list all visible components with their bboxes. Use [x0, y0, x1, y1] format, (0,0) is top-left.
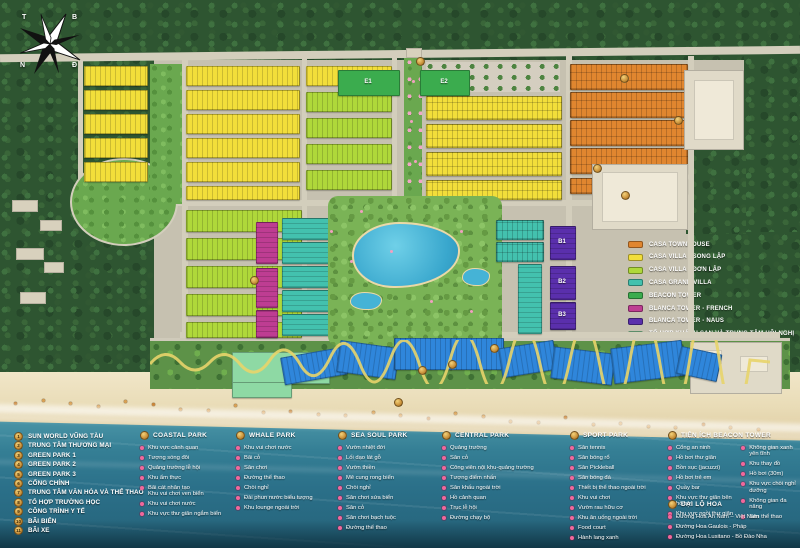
- casa-townhouse: [570, 120, 688, 146]
- pink-bullet: [236, 476, 240, 480]
- compass-north-label: B: [72, 14, 77, 21]
- casa-villa-song-lap: [426, 96, 562, 120]
- compass-west-label: T: [22, 14, 26, 21]
- park-section-items: Sân tennisSân bóng rổSân PickleballSân b…: [570, 445, 646, 545]
- park-item-label: Sân khấu ngoài trời: [450, 485, 501, 491]
- park-item: Tượng điểm nhấn: [442, 475, 534, 481]
- park-item-label: Tượng điểm nhấn: [450, 475, 496, 481]
- pink-bullet: [442, 516, 446, 520]
- park-item: Quảng trường lễ hội: [140, 465, 221, 471]
- park-item-label: Vườn rau hữu cơ: [578, 505, 623, 511]
- numbered-legend-item: 6CỔNG CHÍNH: [14, 479, 70, 488]
- casa-villa-song-lap: [84, 162, 148, 182]
- casa-villa-don-lap: [306, 118, 392, 138]
- pink-bullet: [442, 446, 446, 450]
- park-section-sea-soul-park: SEA SOUL PARKVườn nhiệt đớiLối dạo lát g…: [338, 431, 408, 535]
- casa-villa-song-lap: [426, 152, 562, 176]
- map-marker: [394, 398, 403, 407]
- park-badge: [570, 431, 579, 440]
- park-badge: [668, 431, 677, 440]
- casa-grand-villa: [518, 264, 542, 334]
- park-item-column: Khu vui chơi nướcBãi cỏSân chơiĐường thể…: [236, 445, 313, 515]
- number-badge: 10: [14, 517, 23, 526]
- park-item-label: Khu vui chơi nước: [148, 501, 196, 507]
- pink-bullet: [338, 466, 342, 470]
- pool: [462, 268, 490, 286]
- park-item-label: Khu vực chòi nghỉ dưỡng: [749, 481, 800, 494]
- legend-item-label: CASA GRAND VILLA: [649, 280, 712, 286]
- park-item: Sân bóng đá: [570, 475, 646, 481]
- park-section-items: Đường Hoa An Nam – Việt NamĐường Hoa Gau…: [668, 514, 767, 544]
- park-item-label: Tượng sóng đôi: [148, 455, 189, 461]
- number-badge: 5: [14, 470, 23, 479]
- pink-bullet: [338, 506, 342, 510]
- pink-bullet: [570, 476, 574, 480]
- pink-bullet: [442, 466, 446, 470]
- legend-swatch: [628, 318, 643, 325]
- park-item: Đài phun nước biểu tượng: [236, 495, 313, 501]
- park-section-header: SPORT PARK: [570, 431, 646, 440]
- park-badge: [442, 431, 451, 440]
- park-item-label: Hồ bơi trẻ em: [676, 475, 711, 481]
- park-item: Cổng an ninh: [668, 445, 733, 451]
- park-item-label: Đài phun nước biểu tượng: [244, 495, 313, 501]
- pink-bullet: [338, 446, 342, 450]
- park-item: Sân cỏ: [442, 455, 534, 461]
- numbered-legend-label: CÔNG TRÌNH Y TẾ: [28, 508, 85, 515]
- pink-bullet: [442, 496, 446, 500]
- numbered-legend-item: 10BÃI BIỂN: [14, 517, 56, 526]
- park-item: Chòi nghỉ: [236, 485, 313, 491]
- park-item: Đường thể thao: [338, 525, 396, 531]
- numbered-legend-label: GREEN PARK 1: [28, 452, 76, 459]
- park-item: Khu lounge ngoài trời: [236, 505, 313, 511]
- park-section-items: Quảng trườngSân cỏCông viên nội khu-quản…: [442, 445, 534, 525]
- park-item: Bãi cát nhân tạo Khu vui chơi ven biển: [140, 485, 221, 498]
- pink-bullet: [741, 446, 745, 450]
- park-item-label: Quảng trường lễ hội: [148, 465, 200, 471]
- pink-bullet: [236, 506, 240, 510]
- pink-bullet: [668, 515, 672, 519]
- numbered-legend-item: 1SUN WORLD VŨNG TÀU: [14, 432, 103, 441]
- park-item-label: Khu ẩm thực: [148, 475, 181, 481]
- numbered-legend-item: 7TRUNG TÂM VĂN HÓA VÀ THỂ THAO: [14, 488, 144, 497]
- casa-grand-villa: [282, 290, 332, 312]
- compass-east-label: Đ: [72, 62, 77, 69]
- flower-tree: [350, 260, 353, 263]
- numbered-legend-item: 9CÔNG TRÌNH Y TẾ: [14, 507, 85, 516]
- pink-bullet: [338, 496, 342, 500]
- park-section-whale-park: WHALE PARKKhu vui chơi nướcBãi cỏSân chơ…: [236, 431, 313, 515]
- park-item-label: Thiết bị thể thao ngoài trời: [578, 485, 646, 491]
- park-item-label: Đường Hoa Lusitano - Bồ Đào Nha: [676, 534, 767, 540]
- park-item-label: Sân chơi: [244, 465, 267, 471]
- numbered-legend-label: SUN WORLD VŨNG TÀU: [28, 433, 103, 440]
- legend-swatch: [628, 254, 643, 261]
- pink-bullet: [668, 466, 672, 470]
- pink-bullet: [570, 486, 574, 490]
- compass-south-label: N: [20, 62, 25, 69]
- park-item-label: Đường thể thao: [346, 525, 387, 531]
- flower-tree: [360, 210, 363, 213]
- park-item: Vườn rau hữu cơ: [570, 505, 646, 511]
- park-section-header: CENTRAL PARK: [442, 431, 534, 440]
- park-item-label: Sân bóng rổ: [578, 455, 610, 461]
- casa-grand-villa: [282, 242, 332, 264]
- park-item-label: Sân bóng đá: [578, 475, 611, 481]
- map-marker: [416, 57, 425, 66]
- pink-bullet: [338, 476, 342, 480]
- pink-bullet: [570, 506, 574, 510]
- numbered-legend-label: BÃI XE: [28, 527, 50, 534]
- park-item: Sân cỏ: [338, 505, 396, 511]
- legend-item-label: CASA TOWNHOUSE: [649, 242, 710, 248]
- park-item: Hồ bơi trẻ em: [668, 475, 733, 481]
- casa-grand-villa: [282, 266, 332, 288]
- park-item-label: Vườn nhiệt đới: [346, 445, 385, 451]
- park-item-label: Sân chơi sứa biển: [346, 495, 393, 501]
- pink-bullet: [442, 476, 446, 480]
- pink-bullet: [236, 496, 240, 500]
- map-marker: [620, 74, 629, 83]
- pool: [350, 292, 382, 310]
- flower-tree: [330, 230, 333, 233]
- number-badge: 7: [14, 488, 23, 497]
- pink-bullet: [668, 456, 672, 460]
- park-item-label: Trục lễ hội: [450, 505, 477, 511]
- school-building: [602, 172, 678, 222]
- pink-bullet: [338, 516, 342, 520]
- casa-townhouse: [570, 92, 688, 118]
- park-item: Trục lễ hội: [442, 505, 534, 511]
- legend-swatch: [628, 267, 643, 274]
- casa-grand-villa: [496, 220, 544, 240]
- legend-swatch: [628, 305, 643, 312]
- park-item-label: Khu lounge ngoài trời: [244, 505, 299, 511]
- park-item: Thiết bị thể thao ngoài trời: [570, 485, 646, 491]
- pink-bullet: [668, 535, 672, 539]
- park-section-header: COASTAL PARK: [140, 431, 221, 440]
- blanca-tower-french: [256, 222, 278, 264]
- masterplan-map: T B N Đ E1 E2 B1 B2 B3 CASA TOWNHOUSECAS…: [0, 0, 800, 548]
- park-section-header: SEA SOUL PARK: [338, 431, 408, 440]
- number-badge: 4: [14, 460, 23, 469]
- pink-bullet: [668, 446, 672, 450]
- park-item: Food court: [570, 525, 646, 531]
- park-item-label: Mê cung rong biển: [346, 475, 394, 481]
- park-item: Chòi nghỉ: [338, 485, 396, 491]
- pink-bullet: [236, 486, 240, 490]
- casa-villa-song-lap: [186, 138, 300, 158]
- casa-grand-villa: [496, 242, 544, 262]
- park-section-central-park: CENTRAL PARKQuảng trườngSân cỏCông viên …: [442, 431, 534, 525]
- numbered-legend-item: 11BÃI XE: [14, 526, 50, 535]
- pink-bullet: [140, 502, 144, 506]
- park-item: Sân tennis: [570, 445, 646, 451]
- numbered-legend-item: 4GREEN PARK 2: [14, 460, 76, 469]
- park-item-label: Sân chơi bạch tuộc: [346, 515, 396, 521]
- existing-building: [16, 248, 44, 260]
- park-item: Không gian xanh yên tĩnh: [741, 445, 800, 458]
- park-item: Khu vực cảnh quan: [140, 445, 221, 451]
- pink-bullet: [140, 512, 144, 516]
- park-section-title: CENTRAL PARK: [455, 432, 509, 439]
- casa-villa-don-lap: [306, 170, 392, 190]
- park-item: Đường thể thao: [236, 475, 313, 481]
- park-section-items: Khu vui chơi nướcBãi cỏSân chơiĐường thể…: [236, 445, 313, 515]
- pink-bullet: [236, 456, 240, 460]
- blanca-tower-b2-label: B2: [550, 266, 574, 298]
- pink-bullet: [338, 486, 342, 490]
- park-item-label: Khu vực thư giãn ngắm biển: [148, 511, 221, 517]
- beach-promenade-path: [150, 340, 770, 384]
- park-item-label: Khu vực cảnh quan: [148, 445, 198, 451]
- park-item: Mê cung rong biển: [338, 475, 396, 481]
- casa-townhouse: [570, 64, 688, 90]
- park-item-column: Quảng trườngSân cỏCông viên nội khu-quản…: [442, 445, 534, 525]
- casa-villa-song-lap: [186, 114, 300, 134]
- park-item-label: Sân cỏ: [450, 455, 468, 461]
- park-item: Khu ăn uống ngoài trời: [570, 515, 646, 521]
- pink-bullet: [668, 525, 672, 529]
- map-marker: [674, 116, 683, 125]
- pink-bullet: [668, 486, 672, 490]
- park-item-label: Công viên nội khu-quảng trường: [450, 465, 534, 471]
- park-item: Quầy bar: [668, 485, 733, 491]
- pink-bullet: [140, 476, 144, 480]
- map-marker: [448, 360, 457, 369]
- park-item: Sân khấu ngoài trời: [442, 485, 534, 491]
- park-item: Sân Pickleball: [570, 465, 646, 471]
- number-badge: 9: [14, 507, 23, 516]
- park-section-title: WHALE PARK: [249, 432, 296, 439]
- existing-building: [44, 262, 64, 273]
- legend-item-label: CASA VILLA - ĐƠN LẬP: [649, 267, 721, 273]
- beacon-tower-e2-label: E2: [420, 70, 468, 94]
- park-item-label: Đường Hoa Gaulois - Pháp: [676, 524, 747, 530]
- park-item-label: Hồ bơi thư giãn: [676, 455, 716, 461]
- pink-bullet: [338, 456, 342, 460]
- map-marker: [621, 191, 630, 200]
- park-item-label: Food court: [578, 525, 606, 531]
- casa-villa-song-lap: [84, 138, 148, 158]
- park-item-label: Đường Hoa An Nam – Việt Nam: [676, 514, 759, 520]
- park-item-label: Vườn thiền: [346, 465, 375, 471]
- numbered-legend-label: CỔNG CHÍNH: [28, 480, 70, 487]
- legend-item: BLANCA TOWER - FRENCH: [628, 305, 733, 312]
- park-item-column: Sân tennisSân bóng rổSân PickleballSân b…: [570, 445, 646, 545]
- blanca-tower-french: [256, 268, 278, 308]
- park-item-label: Chòi nghỉ: [244, 485, 269, 491]
- numbered-legend-label: TRUNG TÂM VĂN HÓA VÀ THỂ THAO: [28, 489, 144, 496]
- park-item: Khu vực thư giãn ngắm biển: [140, 511, 221, 517]
- numbered-legend-label: GREEN PARK 2: [28, 461, 76, 468]
- legend-item: CASA VILLA - SONG LẬP: [628, 254, 725, 261]
- numbered-legend-label: TRUNG TÂM THƯƠNG MẠI: [28, 442, 111, 449]
- flower-tree: [410, 120, 413, 123]
- existing-building: [20, 292, 46, 304]
- park-item-column: Vườn nhiệt đớiLối dạo lát gỗVườn thiềnMê…: [338, 445, 396, 535]
- flower-tree: [470, 310, 473, 313]
- park-badge: [338, 431, 347, 440]
- number-badge: 8: [14, 498, 23, 507]
- forest-area: [686, 148, 746, 234]
- park-item: Khu ẩm thực: [140, 475, 221, 481]
- park-item: Bồn sục (jacuzzi): [668, 465, 733, 471]
- pink-bullet: [570, 536, 574, 540]
- pink-bullet: [741, 482, 745, 486]
- park-item: Vườn thiền: [338, 465, 396, 471]
- park-badge: [668, 500, 677, 509]
- park-item: Vườn nhiệt đới: [338, 445, 396, 451]
- number-badge: 3: [14, 451, 23, 460]
- park-item-label: Không gian xanh yên tĩnh: [749, 445, 800, 458]
- park-item: Bãi cỏ: [236, 455, 313, 461]
- pink-bullet: [236, 446, 240, 450]
- park-item: Hồ bơi (30m): [741, 471, 800, 477]
- park-item: Sân chơi sứa biển: [338, 495, 396, 501]
- number-badge: 6: [14, 479, 23, 488]
- park-item: Hành lang xanh: [570, 535, 646, 541]
- park-item-label: Bãi cát nhân tạo Khu vui chơi ven biển: [148, 485, 204, 498]
- green-median-strip: [150, 64, 182, 204]
- casa-villa-song-lap: [186, 90, 300, 110]
- park-badge: [236, 431, 245, 440]
- park-section-header: ĐẠI LỘ HOA: [668, 500, 767, 509]
- pink-bullet: [570, 516, 574, 520]
- existing-building: [40, 220, 62, 231]
- pink-bullet: [570, 526, 574, 530]
- blanca-tower-french: [256, 310, 278, 338]
- park-item-label: Sân Pickleball: [578, 465, 614, 471]
- legend-item: CASA VILLA - ĐƠN LẬP: [628, 267, 721, 274]
- park-item-label: Chòi nghỉ: [346, 485, 371, 491]
- pink-bullet: [140, 486, 144, 490]
- casa-villa-song-lap: [186, 66, 300, 86]
- legend-swatch: [628, 241, 643, 248]
- beach-umbrella: [152, 403, 155, 406]
- flower-tree: [430, 300, 433, 303]
- park-item-label: Sân cỏ: [346, 505, 364, 511]
- park-item-label: Hồ bơi (30m): [749, 471, 783, 477]
- park-section-title: SEA SOUL PARK: [351, 432, 408, 439]
- park-item: Sân bóng rổ: [570, 455, 646, 461]
- park-item-label: Sân tennis: [578, 445, 605, 451]
- legend-item: BLANCA TOWER - NAUS: [628, 318, 724, 325]
- park-item-label: Hồ cảnh quan: [450, 495, 486, 501]
- park-item-label: Bãi cỏ: [244, 455, 260, 461]
- park-item: Công viên nội khu-quảng trường: [442, 465, 534, 471]
- park-item: Khu vui chơi: [570, 495, 646, 501]
- numbered-legend-label: BÃI BIỂN: [28, 518, 56, 525]
- legend-swatch: [628, 279, 643, 286]
- park-item: Hồ bơi thư giãn: [668, 455, 733, 461]
- numbered-legend-item: 3GREEN PARK 1: [14, 451, 76, 460]
- flower-tree: [460, 230, 463, 233]
- existing-building: [12, 200, 38, 212]
- numbered-legend-label: GREEN PARK 3: [28, 471, 76, 478]
- flower-tree: [414, 160, 417, 163]
- map-marker: [490, 344, 499, 353]
- map-marker: [250, 276, 259, 285]
- legend-item: CASA TOWNHOUSE: [628, 241, 710, 248]
- pink-bullet: [442, 486, 446, 490]
- park-item-label: Khu vui chơi: [578, 495, 610, 501]
- blanca-tower-b3-label: B3: [550, 302, 574, 328]
- pink-bullet: [140, 446, 144, 450]
- casa-villa-don-lap: [306, 144, 392, 164]
- park-item-label: Quầy bar: [676, 485, 700, 491]
- legend-item-label: BLANCA TOWER - NAUS: [649, 318, 724, 324]
- number-badge: 11: [14, 526, 23, 535]
- park-item-label: Hành lang xanh: [578, 535, 619, 541]
- pink-bullet: [570, 446, 574, 450]
- pink-bullet: [338, 526, 342, 530]
- park-item-label: Khu vui chơi nước: [244, 445, 292, 451]
- pink-bullet: [570, 496, 574, 500]
- park-item: Khu vực chòi nghỉ dưỡng: [741, 481, 800, 494]
- casa-villa-song-lap: [84, 66, 148, 86]
- park-item: Đường Hoa An Nam – Việt Nam: [668, 514, 767, 520]
- park-item-label: Quảng trường: [450, 445, 487, 451]
- park-item-column: Đường Hoa An Nam – Việt NamĐường Hoa Gau…: [668, 514, 767, 544]
- casa-villa-song-lap: [186, 162, 300, 182]
- park-item: Khu thay đồ: [741, 461, 800, 467]
- casa-villa-song-lap: [426, 124, 562, 148]
- number-badge: 2: [14, 441, 23, 450]
- legend-item: CASA GRAND VILLA: [628, 279, 712, 286]
- park-section-title: TIỆN ÍCH BEACON TOWER: [681, 432, 771, 439]
- park-item: Hồ cảnh quan: [442, 495, 534, 501]
- hotel-conference-center: [232, 382, 292, 398]
- pink-bullet: [442, 506, 446, 510]
- park-item: Tượng sóng đôi: [140, 455, 221, 461]
- pink-bullet: [140, 466, 144, 470]
- pink-bullet: [668, 476, 672, 480]
- park-item: Khu vui chơi nước: [236, 445, 313, 451]
- map-marker: [418, 366, 427, 375]
- number-badge: 1: [14, 432, 23, 441]
- park-section-header: WHALE PARK: [236, 431, 313, 440]
- park-item: Đường Hoa Gaulois - Pháp: [668, 524, 767, 530]
- flower-tree: [390, 250, 393, 253]
- pink-bullet: [741, 472, 745, 476]
- casa-grand-villa: [282, 314, 332, 336]
- numbered-legend-item: 8TỔ HỢP TRƯỜNG HỌC: [14, 498, 100, 507]
- pink-bullet: [570, 466, 574, 470]
- park-item: Đường Hoa Lusitano - Bồ Đào Nha: [668, 534, 767, 540]
- park-item-label: Bồn sục (jacuzzi): [676, 465, 720, 471]
- park-section--i-l-hoa: ĐẠI LỘ HOAĐường Hoa An Nam – Việt NamĐườ…: [668, 500, 767, 544]
- numbered-legend-item: 2TRUNG TÂM THƯƠNG MẠI: [14, 441, 111, 450]
- park-section-sport-park: SPORT PARKSân tennisSân bóng rổSân Pickl…: [570, 431, 646, 545]
- park-section-items: Khu vực cảnh quanTượng sóng đôiQuảng trư…: [140, 445, 221, 521]
- pink-bullet: [741, 462, 745, 466]
- park-item-label: Cổng an ninh: [676, 445, 711, 451]
- casa-grand-villa: [282, 218, 332, 240]
- pink-bullet: [442, 456, 446, 460]
- casa-villa-song-lap: [84, 114, 148, 134]
- park-item-label: Đường thể thao: [244, 475, 285, 481]
- park-item-label: Đường chạy bộ: [450, 515, 490, 521]
- park-item-label: Khu thay đồ: [749, 461, 780, 467]
- park-item: Khu vui chơi nước: [140, 501, 221, 507]
- pink-bullet: [140, 456, 144, 460]
- park-item: Đường chạy bộ: [442, 515, 534, 521]
- park-item: Sân chơi bạch tuộc: [338, 515, 396, 521]
- beacon-tower-e1-label: E1: [338, 70, 398, 94]
- pink-bullet: [236, 466, 240, 470]
